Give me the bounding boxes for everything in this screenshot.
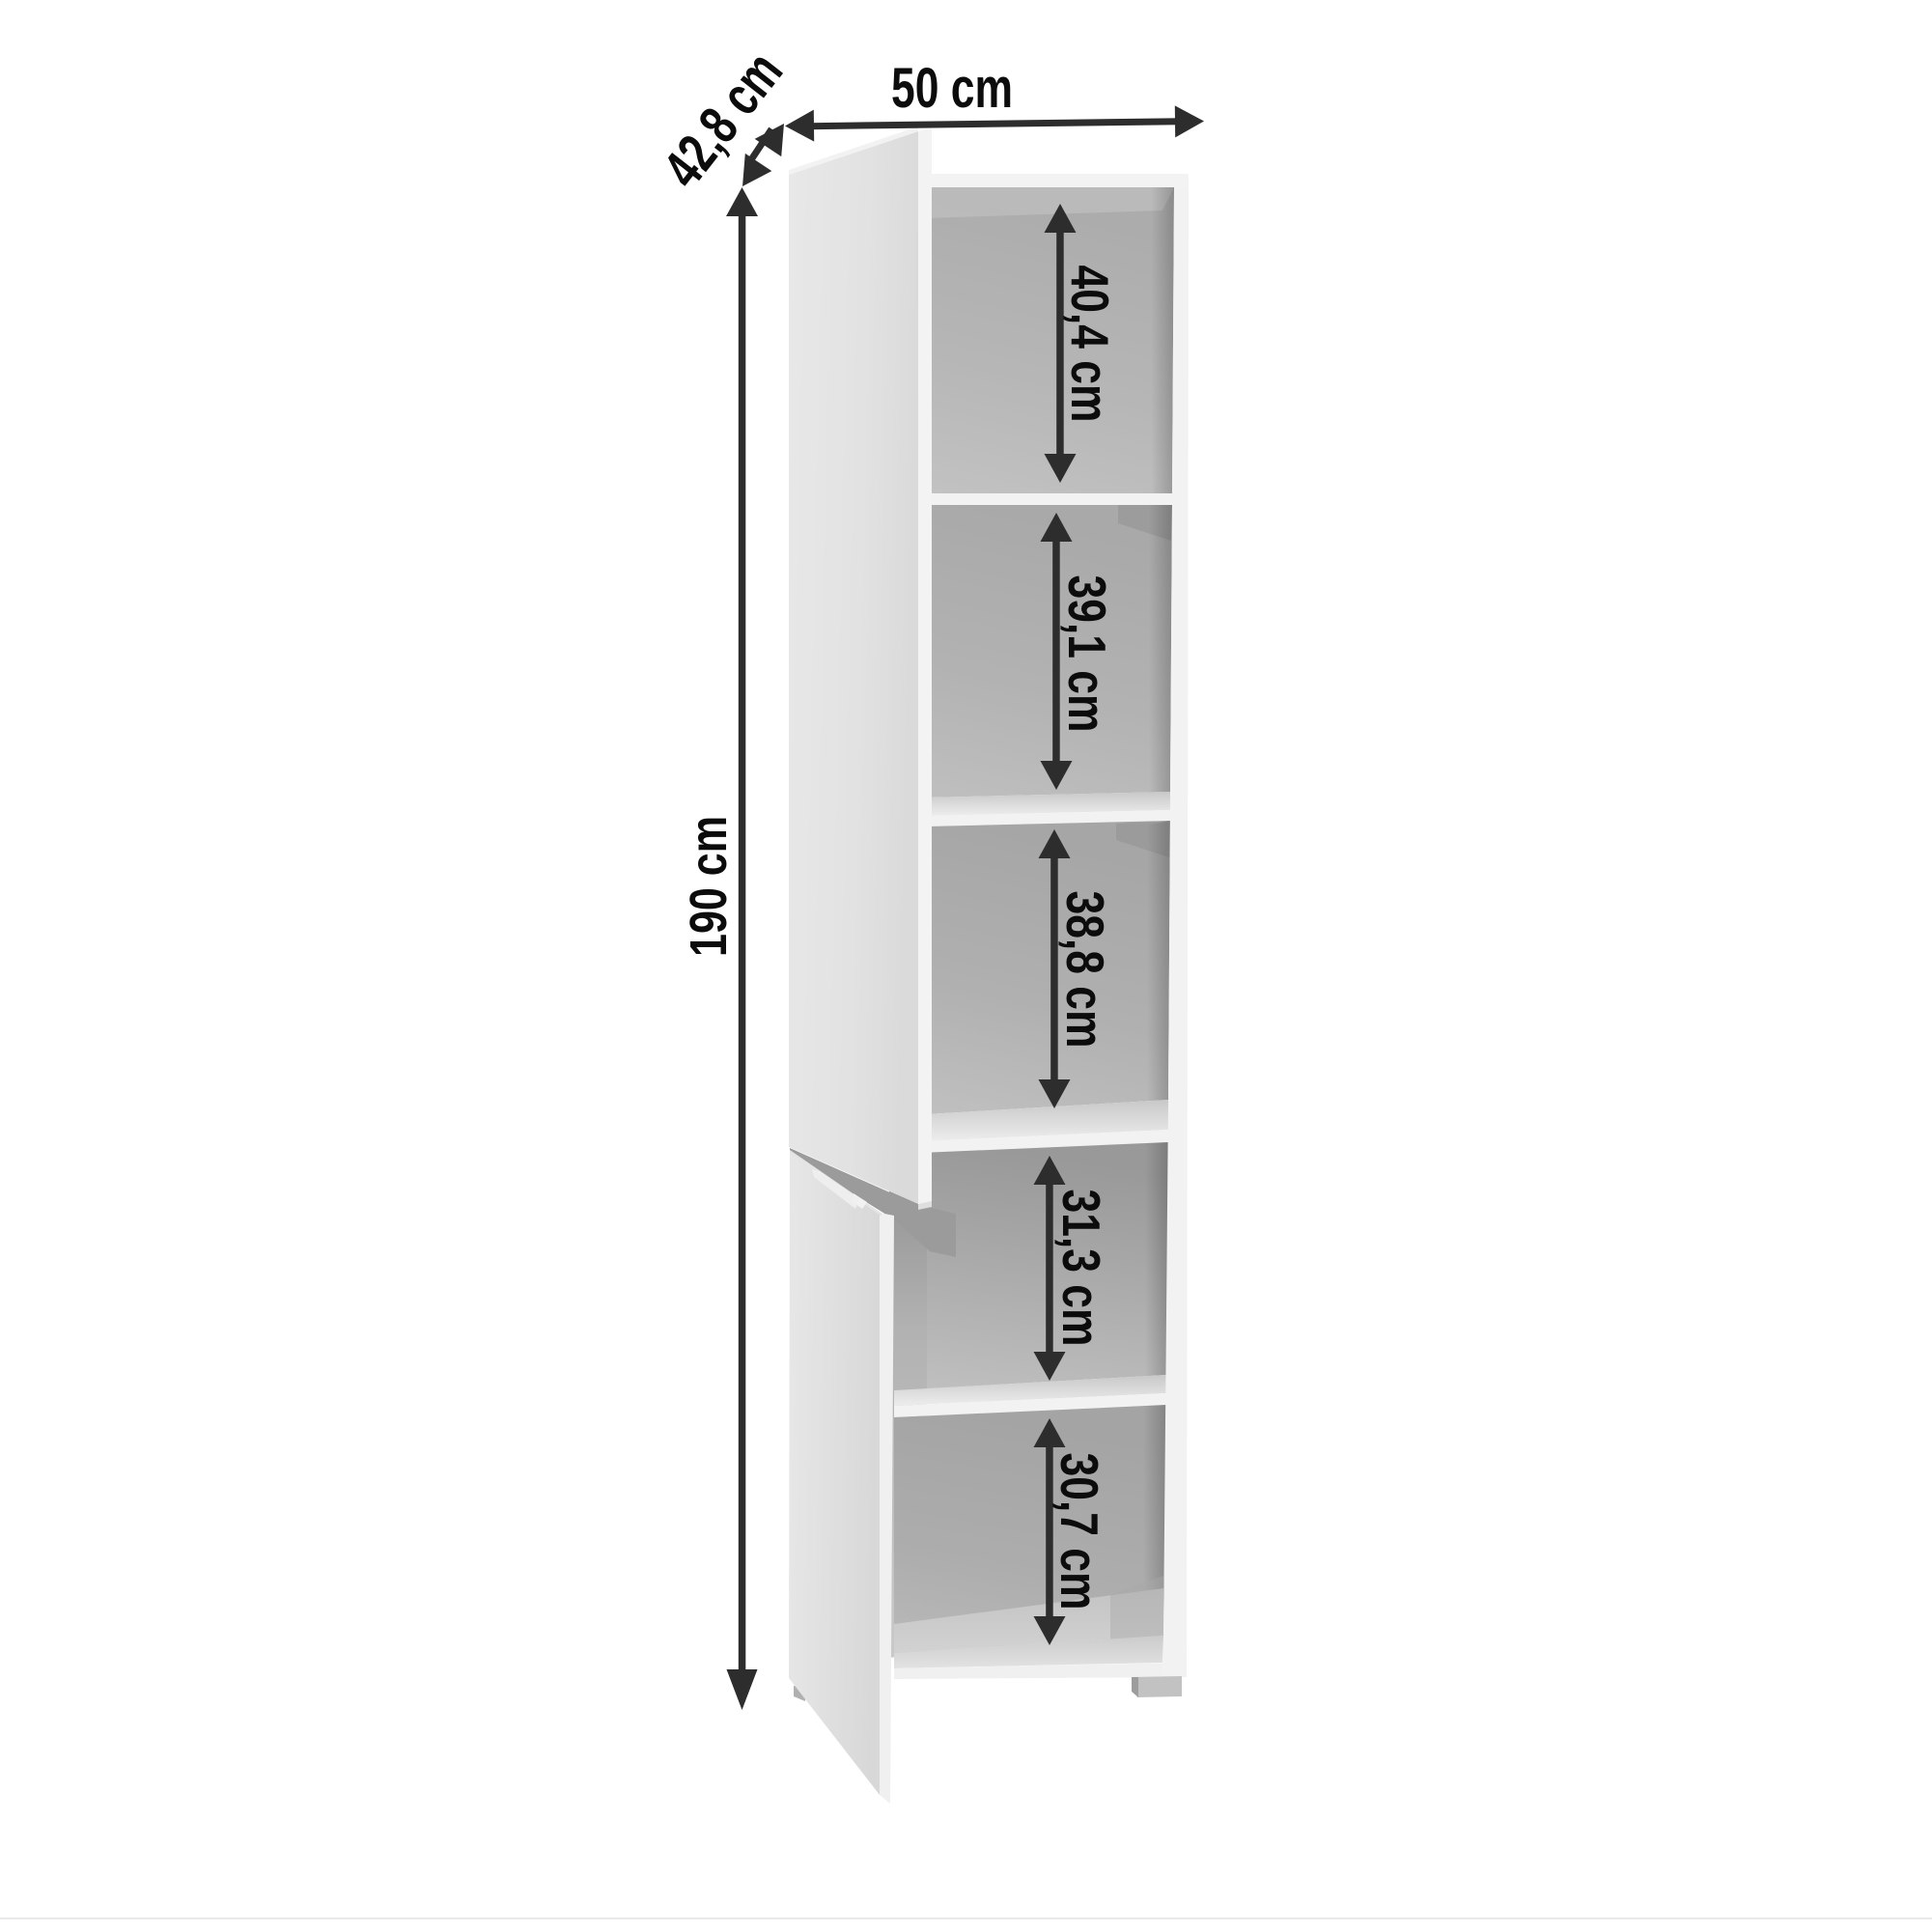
svg-text:31,3 cm: 31,3 cm	[1051, 1190, 1111, 1347]
svg-text:40,4 cm: 40,4 cm	[1060, 266, 1120, 423]
svg-text:50 cm: 50 cm	[891, 57, 1013, 120]
svg-text:39,1 cm: 39,1 cm	[1057, 575, 1117, 733]
svg-text:30,7 cm: 30,7 cm	[1050, 1453, 1109, 1610]
svg-text:38,8 cm: 38,8 cm	[1055, 891, 1115, 1049]
svg-text:190 cm: 190 cm	[680, 816, 738, 957]
